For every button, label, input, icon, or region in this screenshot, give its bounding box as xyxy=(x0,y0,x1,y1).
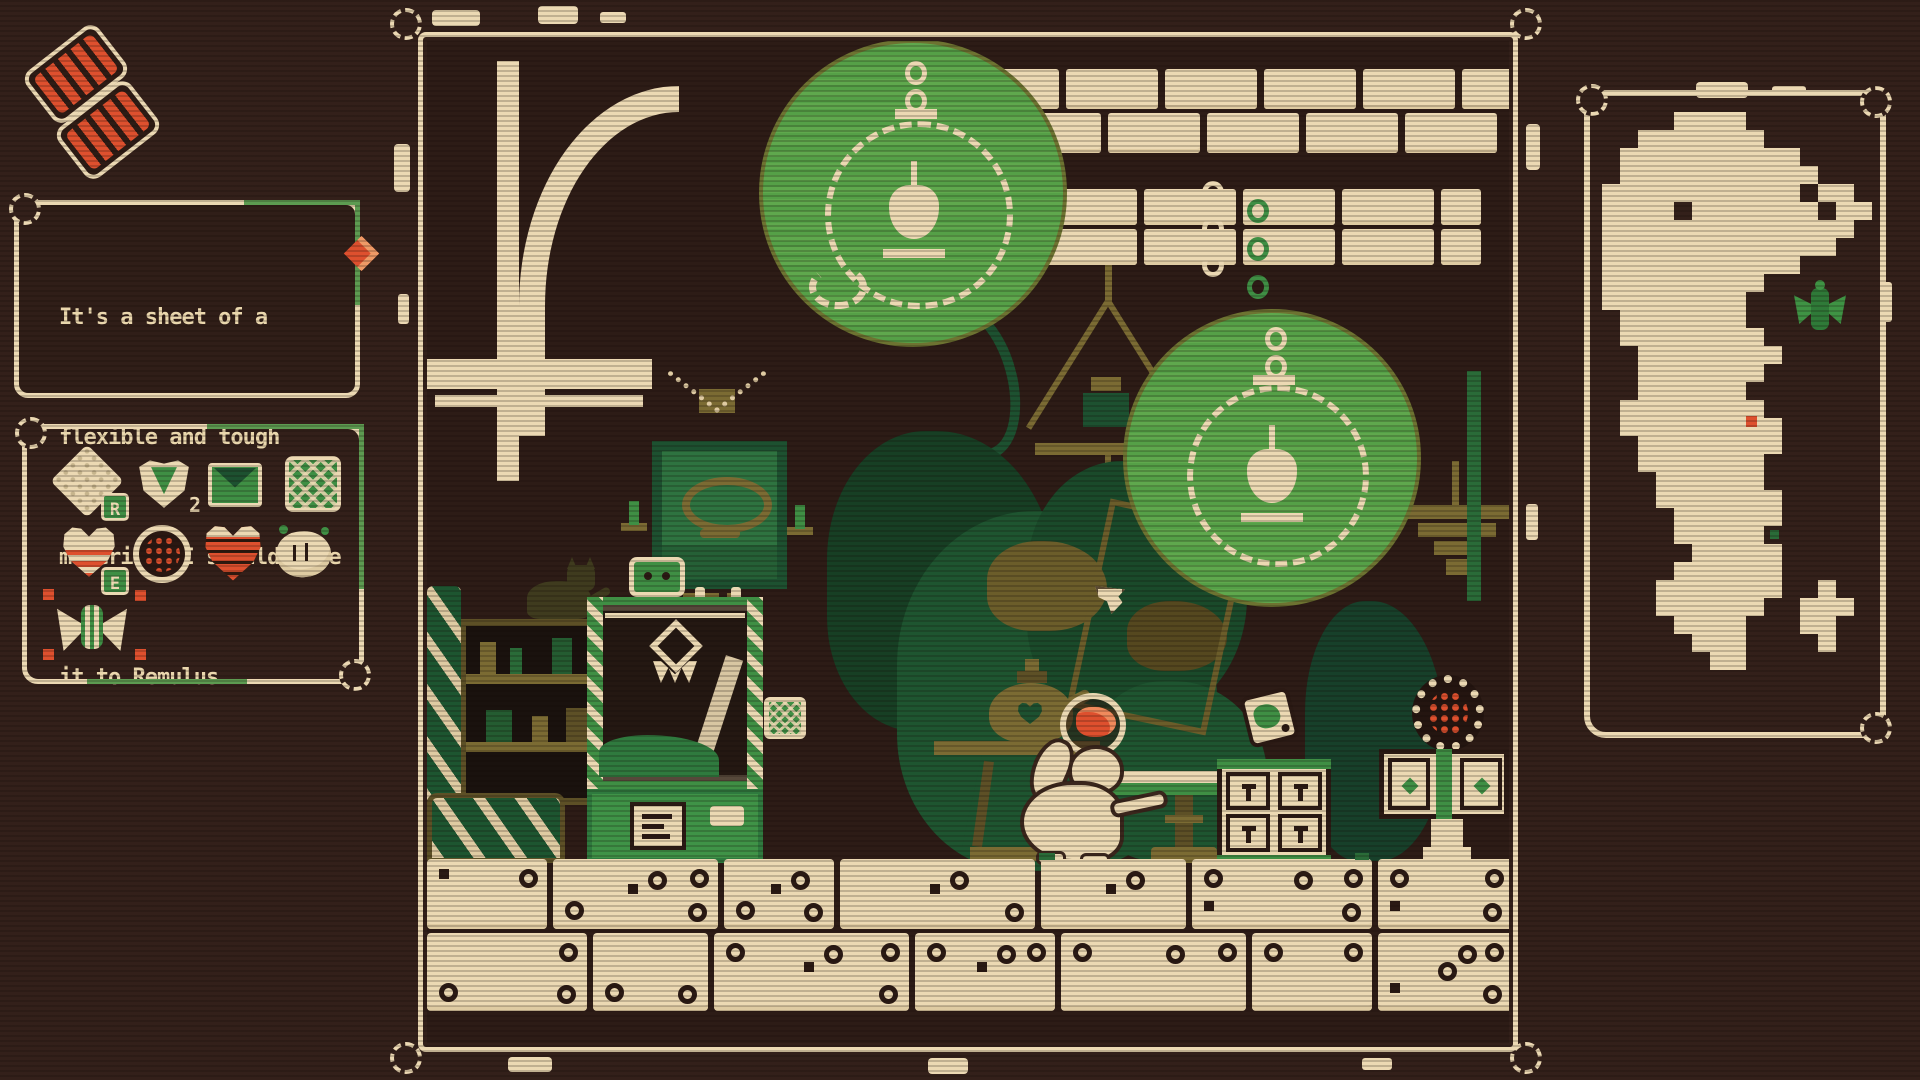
map-explored-cell xyxy=(1638,256,1656,274)
chain-icon-green xyxy=(1247,199,1269,223)
map-explored-cell xyxy=(1656,400,1674,418)
stone-brick xyxy=(1264,69,1356,109)
floor-pip-ring xyxy=(1073,943,1092,962)
map-explored-cell xyxy=(1620,328,1638,346)
keybind-badge: E xyxy=(101,567,129,595)
held-items-group xyxy=(0,0,200,200)
map-explored-cell xyxy=(1692,544,1710,562)
map-explored-cell xyxy=(1638,202,1656,220)
map-explored-cell xyxy=(1728,166,1746,184)
map-explored-cell xyxy=(1692,454,1710,472)
minimap-grid xyxy=(1602,112,1872,670)
floor-pip-ring xyxy=(927,943,946,962)
floor-pip-ring xyxy=(690,869,709,888)
map-explored-cell xyxy=(1656,238,1674,256)
glove-icon xyxy=(274,527,334,580)
map-explored-cell xyxy=(1728,112,1746,130)
map-explored-cell xyxy=(1710,364,1728,382)
map-explored-cell xyxy=(1710,310,1728,328)
floor-pip-ring xyxy=(439,983,458,1002)
selection-dot xyxy=(43,589,54,600)
map-explored-cell xyxy=(1746,364,1764,382)
map-explored-cell xyxy=(1692,526,1710,544)
caged-red-orb xyxy=(1412,675,1484,751)
map-explored-cell xyxy=(1728,400,1746,418)
map-explored-cell xyxy=(1728,544,1746,562)
floor-block xyxy=(1378,859,1509,929)
floor-block xyxy=(553,859,718,929)
map-explored-cell xyxy=(1746,238,1764,256)
map-explored-cell xyxy=(1674,166,1692,184)
map-explored-cell xyxy=(1818,184,1836,202)
selection-dot xyxy=(135,590,146,601)
map-explored-cell xyxy=(1674,490,1692,508)
floor-pip-ring xyxy=(1483,903,1502,922)
map-explored-cell xyxy=(1764,508,1782,526)
floor-pip-square xyxy=(771,884,781,894)
map-explored-cell xyxy=(1620,292,1638,310)
map-explored-cell xyxy=(1674,292,1692,310)
map-explored-cell xyxy=(1836,220,1854,238)
map-explored-cell xyxy=(1764,418,1782,436)
map-explored-cell xyxy=(1782,238,1800,256)
map-explored-cell xyxy=(1710,418,1728,436)
map-explored-cell xyxy=(1638,418,1656,436)
map-explored-cell xyxy=(1656,202,1674,220)
map-explored-cell xyxy=(1710,436,1728,454)
map-explored-cell xyxy=(1746,562,1764,580)
map-explored-cell xyxy=(1710,220,1728,238)
frame-tab xyxy=(928,1058,968,1074)
inventory-item-heart-container[interactable]: E xyxy=(61,523,133,595)
map-explored-cell xyxy=(1656,490,1674,508)
game-scene xyxy=(427,41,1509,1043)
map-explored-cell xyxy=(1620,238,1638,256)
map-explored-cell xyxy=(1710,454,1728,472)
floor-block xyxy=(1378,933,1509,1011)
map-explored-cell xyxy=(1638,454,1656,472)
inventory-item-dart-shield[interactable]: 2 xyxy=(137,455,207,521)
map-explored-cell xyxy=(1710,508,1728,526)
floor-pip-ring xyxy=(726,943,745,962)
moss-bit xyxy=(1039,853,1055,860)
map-explored-cell xyxy=(1746,544,1764,562)
map-explored-cell xyxy=(1674,526,1692,544)
floor-pip-square xyxy=(930,884,940,894)
map-explored-cell xyxy=(1692,418,1710,436)
floor-pip-ring xyxy=(1218,943,1237,962)
map-explored-cell xyxy=(1782,256,1800,274)
map-explored-cell xyxy=(1656,418,1674,436)
sconce xyxy=(629,501,639,525)
map-explored-cell xyxy=(1656,220,1674,238)
floor-pip-ring xyxy=(678,985,697,1004)
map-explored-cell xyxy=(1692,562,1710,580)
inventory-item-flexible-sheet[interactable]: R xyxy=(55,449,125,519)
chain-icon-green xyxy=(1247,275,1269,299)
map-explored-cell xyxy=(1764,256,1782,274)
map-explored-cell xyxy=(1674,562,1692,580)
stone-brick xyxy=(1165,69,1257,109)
map-explored-cell xyxy=(1620,256,1638,274)
floor-pip-ring xyxy=(791,871,810,890)
map-explored-cell xyxy=(1620,184,1638,202)
map-explored-cell xyxy=(1638,346,1656,364)
map-explored-cell xyxy=(1602,202,1620,220)
floor-block xyxy=(1192,859,1372,929)
dice-block-floor xyxy=(427,859,1509,1043)
floor-pip-ring xyxy=(519,869,538,888)
player-marker-moth xyxy=(1794,284,1846,336)
floor-pip-ring xyxy=(1483,985,1502,1004)
player-character xyxy=(1002,693,1202,865)
map-explored-cell xyxy=(1692,310,1710,328)
map-explored-cell xyxy=(1692,256,1710,274)
map-explored-cell xyxy=(1710,346,1728,364)
floor-pip-ring xyxy=(648,871,667,890)
floor-pip-square xyxy=(628,884,638,894)
floor-block xyxy=(1061,933,1246,1011)
floor-pip-ring xyxy=(881,943,900,962)
map-explored-cell xyxy=(1674,454,1692,472)
map-explored-cell xyxy=(1710,400,1728,418)
map-explored-cell xyxy=(1728,184,1746,202)
floor-block xyxy=(427,933,587,1011)
floor-pip-ring xyxy=(1005,903,1024,922)
map-explored-cell xyxy=(1692,616,1710,634)
map-explored-cell xyxy=(1746,346,1764,364)
floor-pip-ring xyxy=(605,983,624,1002)
map-explored-cell xyxy=(1764,580,1782,598)
minimap-red-dot xyxy=(1746,416,1757,427)
map-explored-cell xyxy=(1728,292,1746,310)
panel-corner-knot xyxy=(15,417,47,449)
map-explored-cell xyxy=(1764,202,1782,220)
frame-tab xyxy=(538,6,578,24)
floor-block xyxy=(1041,859,1186,929)
keybind-badge: R xyxy=(101,493,129,521)
minimap-panel xyxy=(1576,82,1894,746)
floor-block xyxy=(714,933,909,1011)
floor-pip-square xyxy=(977,962,987,972)
map-explored-cell xyxy=(1818,238,1836,256)
map-explored-cell xyxy=(1638,364,1656,382)
map-explored-cell xyxy=(1674,436,1692,454)
map-explored-cell xyxy=(1674,112,1692,130)
map-explored-cell xyxy=(1728,310,1746,328)
map-explored-cell xyxy=(1728,238,1746,256)
map-explored-cell xyxy=(1638,310,1656,328)
map-explored-cell xyxy=(1728,418,1746,436)
floor-pip-square xyxy=(1106,884,1116,894)
machine-mascot xyxy=(629,557,685,597)
frame-tab xyxy=(394,144,410,192)
floor-pip-ring xyxy=(1390,869,1409,888)
map-explored-cell xyxy=(1728,328,1746,346)
stone-brick xyxy=(1342,189,1434,225)
map-explored-cell xyxy=(1710,562,1728,580)
map-explored-cell xyxy=(1710,292,1728,310)
floor-pip-ring xyxy=(1342,903,1361,922)
floor-pip-square xyxy=(804,962,814,972)
map-explored-cell xyxy=(1710,598,1728,616)
map-explored-cell xyxy=(1854,202,1872,220)
map-explored-cell xyxy=(1710,238,1728,256)
drawer-dresser xyxy=(1217,759,1331,863)
map-explored-cell xyxy=(1620,202,1638,220)
floor-pip-ring xyxy=(879,985,898,1004)
chain-icon xyxy=(1202,181,1224,205)
floor-pip-ring xyxy=(997,945,1016,964)
frame-tab xyxy=(1362,1058,1392,1070)
minimap-corner-knot xyxy=(1860,712,1892,744)
map-explored-cell xyxy=(1746,436,1764,454)
map-explored-cell xyxy=(1728,652,1746,670)
stone-brick xyxy=(1462,69,1509,109)
map-explored-cell xyxy=(1746,202,1764,220)
lantern-glow-circle xyxy=(1123,309,1421,607)
map-explored-cell xyxy=(1818,616,1836,634)
map-explored-cell xyxy=(1710,544,1728,562)
map-explored-cell xyxy=(1620,310,1638,328)
dialog-line: It's a sheet of a xyxy=(59,298,341,338)
map-explored-cell xyxy=(1710,382,1728,400)
floor-pip-ring xyxy=(736,901,755,920)
ledge-beam-thin xyxy=(435,395,643,407)
map-explored-cell xyxy=(1674,598,1692,616)
map-explored-cell xyxy=(1836,598,1854,616)
map-explored-cell xyxy=(1710,148,1728,166)
wall-strip xyxy=(1467,371,1481,601)
map-explored-cell xyxy=(1710,490,1728,508)
map-explored-cell xyxy=(1692,130,1710,148)
map-explored-cell xyxy=(1674,328,1692,346)
map-explored-cell xyxy=(1800,166,1818,184)
map-explored-cell xyxy=(1746,454,1764,472)
game-screen: It's a sheet of a flexible and tough mat… xyxy=(0,0,1920,1080)
floor-pip-ring xyxy=(1344,869,1363,888)
map-explored-cell xyxy=(1764,490,1782,508)
painting-bone xyxy=(700,529,740,538)
item-count: 2 xyxy=(189,493,201,517)
map-explored-cell xyxy=(1782,148,1800,166)
map-explored-cell xyxy=(1656,364,1674,382)
map-explored-cell xyxy=(1620,220,1638,238)
map-explored-cell xyxy=(1836,202,1854,220)
map-explored-cell xyxy=(1764,436,1782,454)
moss-bit xyxy=(1355,853,1369,860)
map-explored-cell xyxy=(1746,256,1764,274)
map-explored-cell xyxy=(1692,148,1710,166)
inventory-item-glove[interactable] xyxy=(275,525,337,583)
map-explored-cell xyxy=(1800,220,1818,238)
map-explored-cell xyxy=(1674,400,1692,418)
map-explored-cell xyxy=(1692,238,1710,256)
map-explored-cell xyxy=(1692,472,1710,490)
map-explored-cell xyxy=(1728,130,1746,148)
map-explored-cell xyxy=(1638,400,1656,418)
stone-brick xyxy=(1363,69,1455,109)
map-explored-cell xyxy=(1746,184,1764,202)
map-explored-cell xyxy=(1692,112,1710,130)
map-explored-cell xyxy=(1746,148,1764,166)
sconce xyxy=(795,505,805,529)
map-explored-cell xyxy=(1638,166,1656,184)
map-explored-cell xyxy=(1728,580,1746,598)
inventory-panel: R 2 E xyxy=(22,424,364,684)
map-explored-cell xyxy=(1746,598,1764,616)
map-explored-cell xyxy=(1692,202,1710,220)
machine-base xyxy=(587,789,763,863)
map-explored-cell xyxy=(1782,166,1800,184)
map-explored-cell xyxy=(1602,184,1620,202)
arch-post xyxy=(497,61,519,481)
map-explored-cell xyxy=(1728,472,1746,490)
map-explored-cell xyxy=(1656,472,1674,490)
floor-pip-ring xyxy=(804,903,823,922)
stone-brick xyxy=(1066,69,1158,109)
map-explored-cell xyxy=(1728,454,1746,472)
stone-brick xyxy=(1207,113,1299,153)
map-explored-cell xyxy=(1728,436,1746,454)
map-explored-cell xyxy=(1656,346,1674,364)
map-explored-cell xyxy=(1674,184,1692,202)
map-explored-cell xyxy=(1656,580,1674,598)
glove-line xyxy=(293,545,296,561)
map-explored-cell xyxy=(1764,544,1782,562)
panel-border-green-bottom xyxy=(87,679,247,684)
floor-block xyxy=(427,859,547,929)
map-explored-cell xyxy=(1692,328,1710,346)
map-explored-cell xyxy=(1710,202,1728,220)
map-explored-cell xyxy=(1692,274,1710,292)
floor-block xyxy=(724,859,834,929)
map-explored-cell xyxy=(1674,364,1692,382)
character-body xyxy=(1020,781,1124,863)
frame-tab xyxy=(1526,504,1538,540)
map-explored-cell xyxy=(1746,490,1764,508)
stone-brick xyxy=(1306,113,1398,153)
stone-brick xyxy=(1342,229,1434,265)
map-explored-cell xyxy=(1746,166,1764,184)
woven-basket xyxy=(764,697,806,739)
character-arm xyxy=(1109,789,1169,819)
map-explored-cell xyxy=(1620,166,1638,184)
map-explored-cell xyxy=(1782,184,1800,202)
map-explored-cell xyxy=(1764,184,1782,202)
map-explored-cell xyxy=(1728,220,1746,238)
map-explored-cell xyxy=(1620,400,1638,418)
floor-pip-square xyxy=(439,869,449,879)
minimap-green-dot xyxy=(1770,530,1779,539)
map-explored-cell xyxy=(1674,616,1692,634)
frame-tab xyxy=(1526,124,1540,170)
map-explored-cell xyxy=(1692,580,1710,598)
floor-pip-ring xyxy=(1344,943,1363,962)
panel-border-green-right xyxy=(359,429,364,589)
inventory-item-woven-patch[interactable] xyxy=(285,456,341,512)
barrel xyxy=(427,793,565,863)
floor-block xyxy=(1252,933,1372,1011)
map-explored-cell xyxy=(1710,166,1728,184)
floor-pip-ring xyxy=(557,985,576,1004)
map-explored-cell xyxy=(1710,634,1728,652)
chain-icon xyxy=(1202,217,1224,241)
dialog-border-green-top xyxy=(244,200,360,205)
map-explored-cell xyxy=(1674,472,1692,490)
map-explored-cell xyxy=(1602,292,1620,310)
map-explored-cell xyxy=(1674,508,1692,526)
map-explored-cell xyxy=(1674,274,1692,292)
map-explored-cell xyxy=(1656,436,1674,454)
frame-tab xyxy=(508,1057,552,1072)
stone-brick xyxy=(1441,189,1481,225)
map-explored-cell xyxy=(1692,490,1710,508)
map-explored-cell xyxy=(1746,580,1764,598)
map-explored-cell xyxy=(1638,436,1656,454)
map-explored-cell xyxy=(1728,364,1746,382)
map-explored-cell xyxy=(1728,256,1746,274)
inventory-item-caged-orb[interactable] xyxy=(133,525,191,583)
map-explored-cell xyxy=(1692,400,1710,418)
map-explored-cell xyxy=(1710,274,1728,292)
map-explored-cell xyxy=(1710,526,1728,544)
minimap-tab xyxy=(1880,282,1892,322)
map-explored-cell xyxy=(1800,616,1818,634)
floor-pip-ring xyxy=(1204,869,1223,888)
map-explored-cell xyxy=(1746,130,1764,148)
floor-pip-ring xyxy=(1485,943,1504,962)
map-explored-cell xyxy=(1710,130,1728,148)
map-explored-cell xyxy=(1656,130,1674,148)
map-explored-cell xyxy=(1620,274,1638,292)
map-explored-cell xyxy=(1638,238,1656,256)
map-explored-cell xyxy=(1656,292,1674,310)
stone-brick xyxy=(1441,229,1481,265)
minimap-tab xyxy=(1696,82,1748,98)
inventory-item-moth-charm[interactable] xyxy=(57,599,129,663)
map-explored-cell xyxy=(1656,328,1674,346)
frame-corner-knot xyxy=(390,1042,422,1074)
map-explored-cell xyxy=(1728,526,1746,544)
stone-ledge-row xyxy=(967,69,1509,109)
map-explored-cell xyxy=(1674,418,1692,436)
inventory-item-letter[interactable] xyxy=(208,463,264,509)
map-explored-cell xyxy=(1674,382,1692,400)
map-explored-cell xyxy=(1818,598,1836,616)
minimap-tab xyxy=(1772,86,1806,96)
panel-corner-knot xyxy=(339,659,371,691)
map-explored-cell xyxy=(1656,598,1674,616)
chain-icon xyxy=(1202,253,1224,277)
map-explored-cell xyxy=(1710,112,1728,130)
floor-pip-ring xyxy=(1294,871,1313,890)
moth-body xyxy=(81,605,103,649)
map-explored-cell xyxy=(1710,616,1728,634)
map-explored-cell xyxy=(1728,346,1746,364)
map-explored-cell xyxy=(1818,580,1836,598)
frame-corner-knot xyxy=(390,8,422,40)
floor-pip-ring xyxy=(824,945,843,964)
map-explored-cell xyxy=(1656,256,1674,274)
floor-pip-ring xyxy=(1458,945,1477,964)
map-explored-cell xyxy=(1710,328,1728,346)
floor-block xyxy=(840,859,1035,929)
map-explored-cell xyxy=(1692,508,1710,526)
game-viewport[interactable] xyxy=(388,4,1542,1076)
frame-tab xyxy=(600,12,626,23)
inventory-item-striped-heart[interactable] xyxy=(203,521,263,583)
